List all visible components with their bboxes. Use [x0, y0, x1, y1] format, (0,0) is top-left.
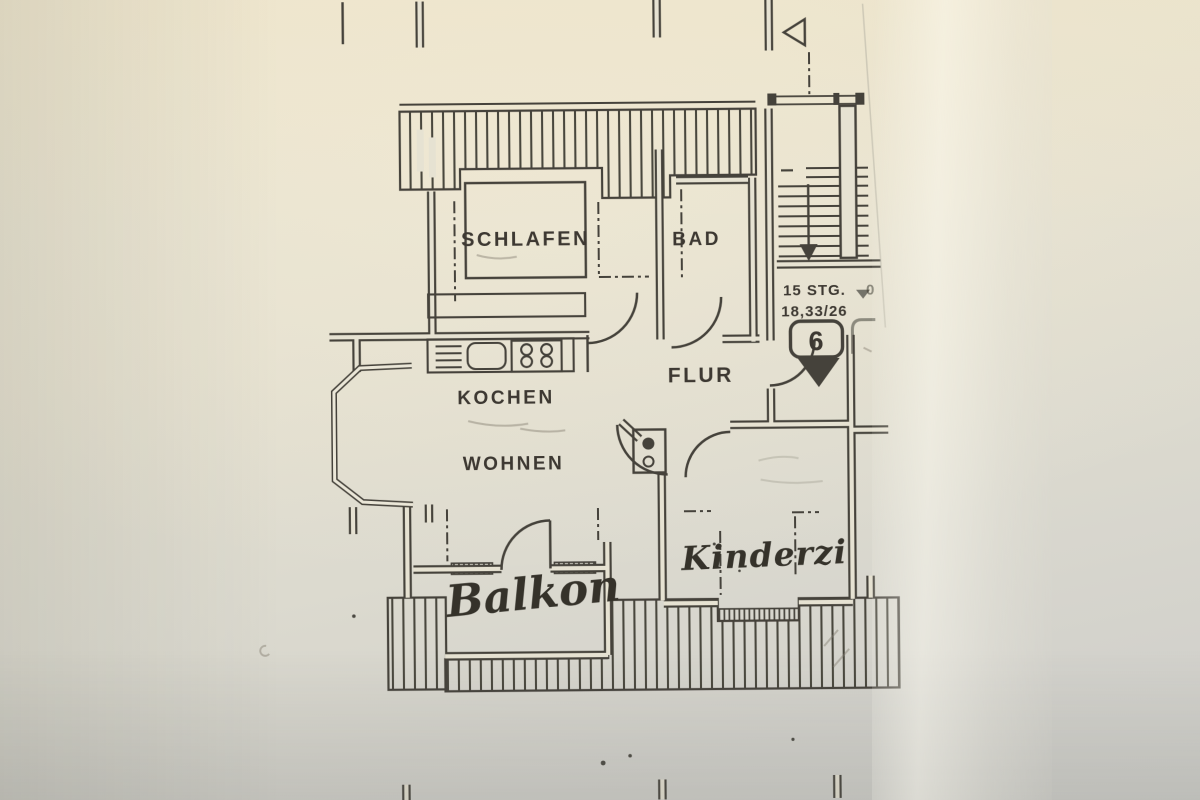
shaft-circle-filled [642, 438, 654, 450]
label-kochen: KOCHEN [457, 387, 555, 409]
photo-fold-sheen [872, 0, 1052, 800]
label-bad: BAD [672, 229, 721, 250]
stair-arrow-stem [808, 184, 809, 246]
stove [511, 340, 561, 371]
shaft-circle-open [643, 457, 653, 467]
stair-spine [839, 106, 856, 258]
bay-window [334, 366, 413, 506]
stairs-steps-label: 15 STG. [783, 282, 846, 300]
label-schlafen: SCHLAFEN [461, 228, 590, 251]
roof-hatch-slit [417, 130, 424, 172]
roof-hatch-slit [429, 137, 436, 177]
sink [467, 343, 505, 369]
door-arc-schlafen [587, 293, 637, 343]
kitchen-counter [427, 338, 573, 372]
door-arc-wohnen [617, 424, 667, 474]
label-flur: FLUR [668, 364, 734, 388]
stairs-dimensions-label: 18,33/26 [781, 303, 848, 321]
burner [541, 344, 552, 355]
burner [521, 356, 532, 367]
stairwell-window [767, 93, 864, 106]
door-arc-kinderzimmer [685, 432, 730, 477]
burner [541, 356, 552, 367]
roof-hatch-north-topline [399, 102, 755, 105]
door-arc-bad [671, 297, 721, 347]
drainboard-lines [436, 346, 462, 367]
window-sill-kinderzimmer [718, 608, 799, 621]
schlafen-knee-wall [428, 293, 585, 317]
label-wohnen: WOHNEN [463, 453, 565, 475]
floor-plan-photo: SCHLAFEN BAD KOCHEN WOHNEN FLUR 15 STG. … [0, 0, 1200, 800]
label-kinderzimmer-handwritten: Kinderzi [679, 532, 847, 578]
roof-hatch-north [399, 109, 756, 200]
staircase [777, 106, 868, 262]
stair-direction-triangle [784, 19, 805, 45]
stair-arrow-head [800, 244, 818, 261]
door-arc-balcony [501, 520, 550, 569]
entrance-arrow [798, 358, 840, 387]
apartment-number: 6 [808, 326, 824, 356]
burner [521, 344, 532, 355]
